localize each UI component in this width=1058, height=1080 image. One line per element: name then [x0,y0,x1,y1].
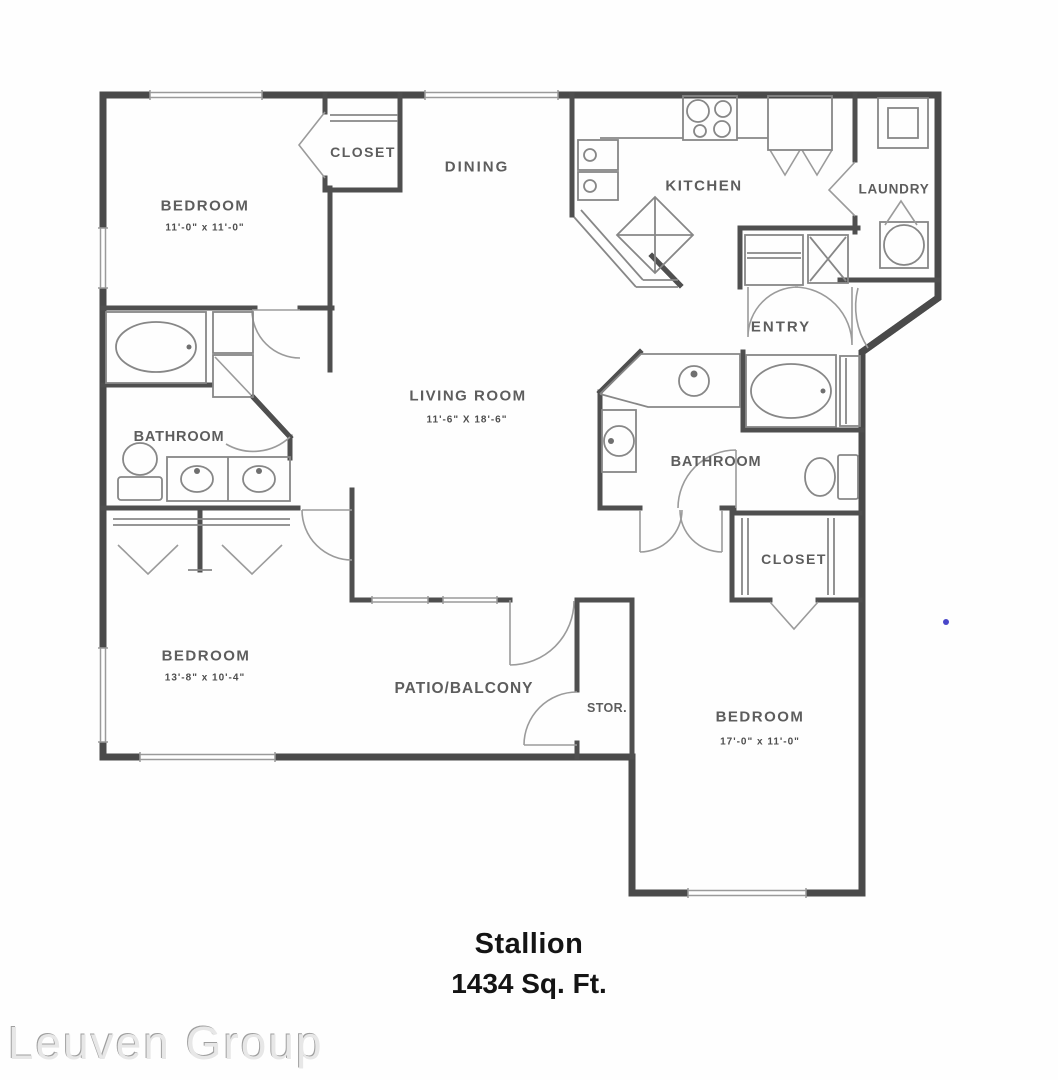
room-label-kitchen: KITCHEN [665,178,742,195]
window-icon [425,90,558,100]
vanity-icon [600,354,740,407]
bifold-door-icon [222,545,282,574]
dishwasher-icon [617,197,693,273]
door-swing-icon [510,600,574,665]
linen-closet-icon [213,312,253,397]
bathtub-icon [746,355,836,427]
double-vanity-icon [167,457,290,501]
room-label-bathroom-2: BATHROOM [671,454,762,470]
plan-area: 1434 Sq. Ft. [0,968,1058,1000]
blue-dot [943,619,949,625]
toilet-icon [118,443,162,500]
title-block: Stallion 1434 Sq. Ft. [0,928,1058,1000]
room-label-closet-2: CLOSET [761,551,827,567]
door-swing-icon [640,510,682,552]
door-swing-icon [795,287,852,345]
door-swing-icon [856,288,868,348]
room-dims-bedroom-1: 11'-0" x 11'-0" [165,223,244,234]
door-swing-icon [226,437,290,451]
window-icon [98,648,108,742]
closet-shelf-icon [745,235,803,285]
bifold-door-icon [770,150,800,175]
plan-title: Stallion [0,928,1058,961]
window-icon [140,752,275,762]
floor-plan-drawing [0,0,1058,1080]
room-label-bedroom-3: BEDROOM [716,709,805,726]
linen-closet-icon [840,356,860,426]
door-swing-icon [252,310,300,358]
bifold-door-icon [802,150,832,175]
dryer-icon [880,201,928,268]
washer-icon [878,98,928,148]
window-icon [443,596,497,604]
room-dims-living-room: 11'-6" X 18'-6" [427,415,508,426]
pantry-icon [768,96,832,150]
vanity-icon [602,410,636,472]
room-label-storage: STOR. [587,701,627,715]
room-label-closet-1: CLOSET [330,144,396,160]
floor-plan-page: CLOSET BEDROOM 11'-0" x 11'-0" DINING KI… [0,0,1058,1080]
window-icon [688,888,806,898]
room-label-bathroom-1: BATHROOM [134,429,225,445]
bifold-door-icon [299,112,325,178]
room-label-entry: ENTRY [751,319,811,336]
door-swing-icon [302,510,352,560]
closet-shelf-icon [330,115,398,121]
room-label-patio-balcony: PATIO/BALCONY [394,680,533,698]
stove-icon [683,96,737,140]
bifold-door-icon [118,545,178,574]
window-icon [150,90,262,100]
bifold-door-icon [829,162,855,216]
watermark: Leuven Group [8,1016,324,1070]
toilet-icon [805,455,858,499]
room-dims-bedroom-2: 13'-8" x 10'-4" [165,673,245,684]
kitchen-sink-icon [578,140,618,200]
bifold-door-icon [770,602,818,629]
door-swing-icon [680,510,722,552]
room-label-bedroom-2: BEDROOM [162,648,251,665]
room-label-living-room: LIVING ROOM [409,388,526,405]
room-dims-bedroom-3: 17'-0" x 11'-0" [720,737,800,748]
water-heater-icon [808,235,848,283]
room-label-dining: DINING [445,159,510,176]
room-label-bedroom-1: BEDROOM [161,198,250,215]
window-icon [372,596,428,604]
window-icon [98,228,108,288]
door-swing-icon [524,692,577,745]
fixtures [106,96,928,595]
bathtub-icon [106,312,206,383]
room-label-laundry: LAUNDRY [858,182,929,197]
